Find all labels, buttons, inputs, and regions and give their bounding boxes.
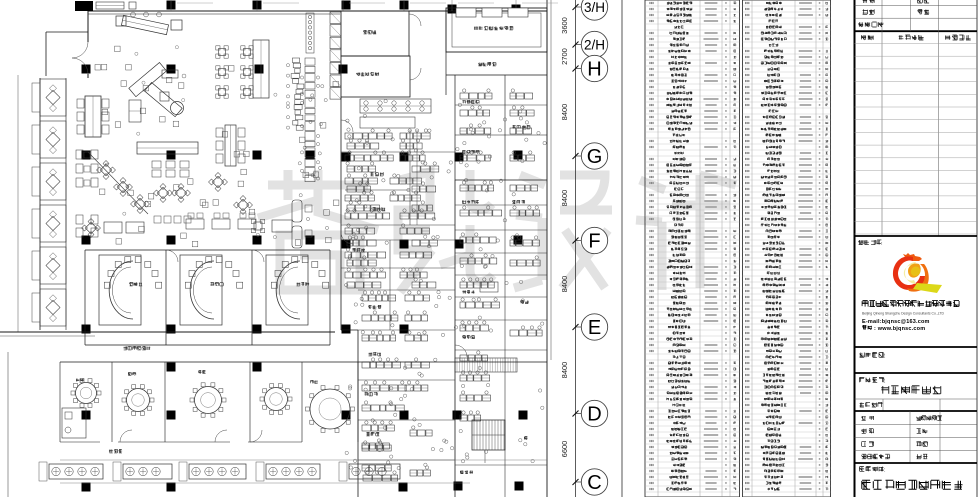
svg-text:8400: 8400 bbox=[560, 190, 569, 207]
svg-text:G: G bbox=[587, 146, 603, 168]
svg-text:E-mail:bjqnsc@163.com: E-mail:bjqnsc@163.com bbox=[862, 319, 930, 325]
svg-text:C: C bbox=[587, 472, 601, 494]
svg-text:2/H: 2/H bbox=[584, 37, 605, 52]
svg-text:: www.bjqnsc.com: : www.bjqnsc.com bbox=[874, 326, 925, 332]
svg-text:F: F bbox=[588, 231, 600, 253]
svg-text:H: H bbox=[587, 59, 601, 81]
svg-text:6600: 6600 bbox=[560, 441, 569, 458]
svg-text:E: E bbox=[588, 317, 601, 339]
svg-text:8400: 8400 bbox=[560, 276, 569, 293]
svg-text:8400: 8400 bbox=[560, 362, 569, 379]
svg-text:8400: 8400 bbox=[560, 104, 569, 121]
svg-text:3/H: 3/H bbox=[584, 0, 605, 15]
svg-text:2700: 2700 bbox=[560, 48, 569, 65]
svg-text:D: D bbox=[587, 404, 601, 426]
svg-text:3600: 3600 bbox=[560, 17, 569, 34]
svg-text:Beijing Qineng Shangchu Design: Beijing Qineng Shangchu Design Consultan… bbox=[862, 312, 944, 316]
